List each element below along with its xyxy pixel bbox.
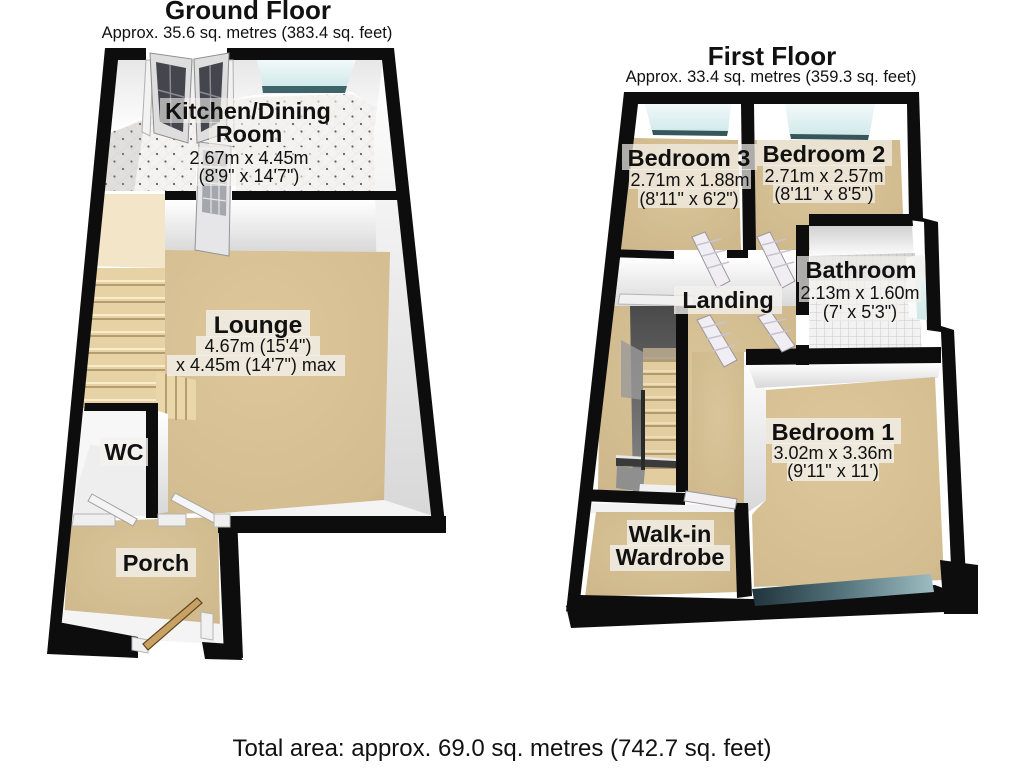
svg-text:(9'11" x 11'): (9'11" x 11') [787,461,879,481]
svg-text:Ground Floor: Ground Floor [165,0,331,25]
svg-text:x 4.45m (14'7") max: x 4.45m (14'7") max [176,355,336,375]
svg-text:(8'11" x 8'5"): (8'11" x 8'5") [774,184,873,204]
svg-text:(8'11" x 6'2"): (8'11" x 6'2") [639,189,738,209]
svg-text:Total area: approx. 69.0 sq. m: Total area: approx. 69.0 sq. metres (742… [233,735,772,762]
svg-text:Bedroom 3: Bedroom 3 [628,145,751,171]
svg-text:First Floor: First Floor [708,41,837,71]
svg-text:Lounge: Lounge [214,312,302,339]
svg-text:Room: Room [216,121,283,147]
svg-text:Approx. 35.6 sq. metres (383.4: Approx. 35.6 sq. metres (383.4 sq. feet) [102,24,393,42]
svg-text:Bedroom 2: Bedroom 2 [763,141,886,167]
svg-text:Approx. 33.4 sq. metres (359.3: Approx. 33.4 sq. metres (359.3 sq. feet) [626,68,917,86]
svg-text:WC: WC [104,439,143,465]
svg-text:Landing: Landing [682,287,773,313]
svg-text:Bathroom: Bathroom [806,257,917,283]
svg-text:2.71m x 1.88m: 2.71m x 1.88m [630,170,749,190]
svg-text:Bedroom 1: Bedroom 1 [772,419,895,445]
svg-text:2.13m x 1.60m: 2.13m x 1.60m [800,283,919,303]
svg-text:Porch: Porch [123,550,190,576]
svg-text:(8'9" x 14'7"): (8'9" x 14'7") [199,166,300,186]
svg-text:(7' x 5'3"): (7' x 5'3") [823,302,897,322]
svg-text:2.71m x 2.57m: 2.71m x 2.57m [764,166,883,186]
svg-text:2.67m x 4.45m: 2.67m x 4.45m [189,148,308,168]
svg-text:3.02m x 3.36m: 3.02m x 3.36m [773,443,892,463]
svg-text:4.67m (15'4"): 4.67m (15'4") [205,336,312,356]
svg-text:Wardrobe: Wardrobe [616,544,725,570]
